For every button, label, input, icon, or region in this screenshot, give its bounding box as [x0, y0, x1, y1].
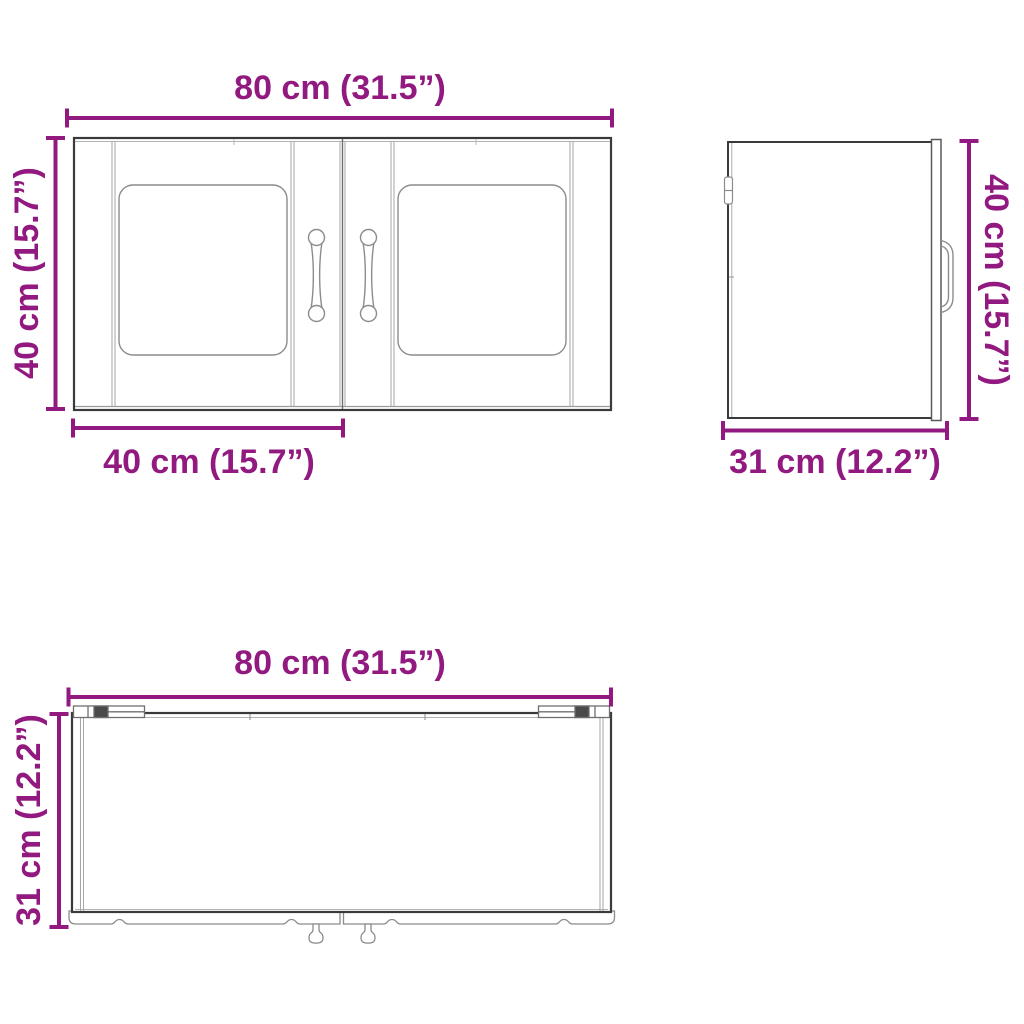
- diagram-line-art: [0, 0, 1024, 1024]
- side-height-label: 40 cm (15.7”): [979, 174, 1013, 386]
- top-right-hinge: [539, 706, 610, 718]
- top-width-label: 80 cm (31.5”): [234, 646, 446, 680]
- side-hinge: [725, 177, 733, 204]
- top-view-knobs: [309, 924, 375, 943]
- front-width-label: 80 cm (31.5”): [234, 71, 446, 105]
- top-depth-label: 31 cm (12.2”): [12, 714, 46, 926]
- dim-top-depth-line: [50, 714, 69, 927]
- side-depth-label: 31 cm (12.2”): [729, 445, 941, 479]
- dim-side-depth-line: [723, 421, 947, 440]
- dim-front-door-width-line: [73, 419, 343, 438]
- side-door-handle: [941, 241, 953, 313]
- side-body-outline: [728, 142, 932, 418]
- cabinet-dimension-diagram: 80 cm (31.5”) 40 cm (15.7”) 40 cm (15.7”…: [0, 0, 1024, 1024]
- dim-top-width-line: [69, 688, 612, 707]
- top-view-drawing: [69, 706, 615, 943]
- dim-front-height-line: [46, 138, 65, 409]
- top-left-hinge: [74, 706, 145, 718]
- front-height-label: 40 cm (15.7”): [10, 167, 44, 379]
- dim-front-width-line: [67, 109, 612, 128]
- side-door-edge: [932, 140, 942, 421]
- top-cabinet-outline: [72, 713, 611, 912]
- dim-side-height-line: [960, 141, 979, 419]
- front-door-width-label: 40 cm (15.7”): [103, 445, 315, 479]
- front-view-drawing: [74, 138, 611, 410]
- side-view-drawing: [725, 140, 954, 421]
